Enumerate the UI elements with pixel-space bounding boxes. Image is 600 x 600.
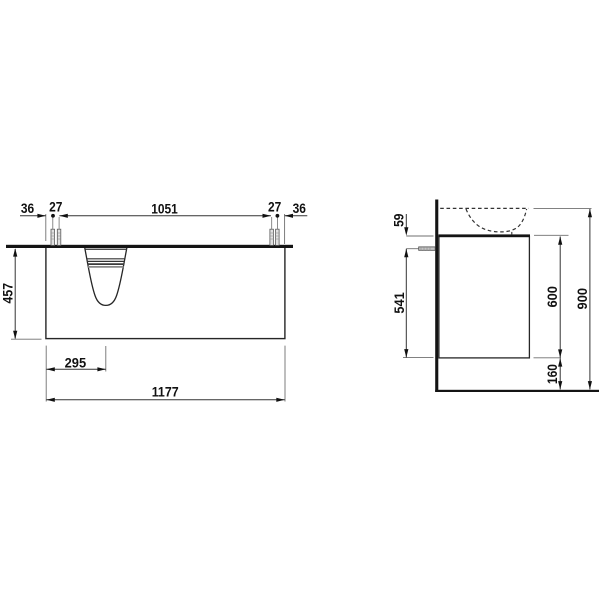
svg-text:160: 160 [544, 364, 560, 384]
svg-text:36: 36 [293, 200, 306, 216]
svg-text:27: 27 [49, 198, 62, 214]
svg-text:457: 457 [0, 283, 15, 304]
svg-text:59: 59 [391, 213, 407, 226]
svg-text:600: 600 [544, 286, 560, 308]
svg-text:1051: 1051 [151, 200, 178, 216]
svg-text:27: 27 [268, 198, 281, 214]
svg-text:36: 36 [21, 200, 34, 216]
svg-text:541: 541 [391, 292, 407, 314]
svg-text:1177: 1177 [152, 383, 179, 399]
svg-text:900: 900 [574, 288, 590, 310]
svg-text:295: 295 [65, 354, 87, 370]
